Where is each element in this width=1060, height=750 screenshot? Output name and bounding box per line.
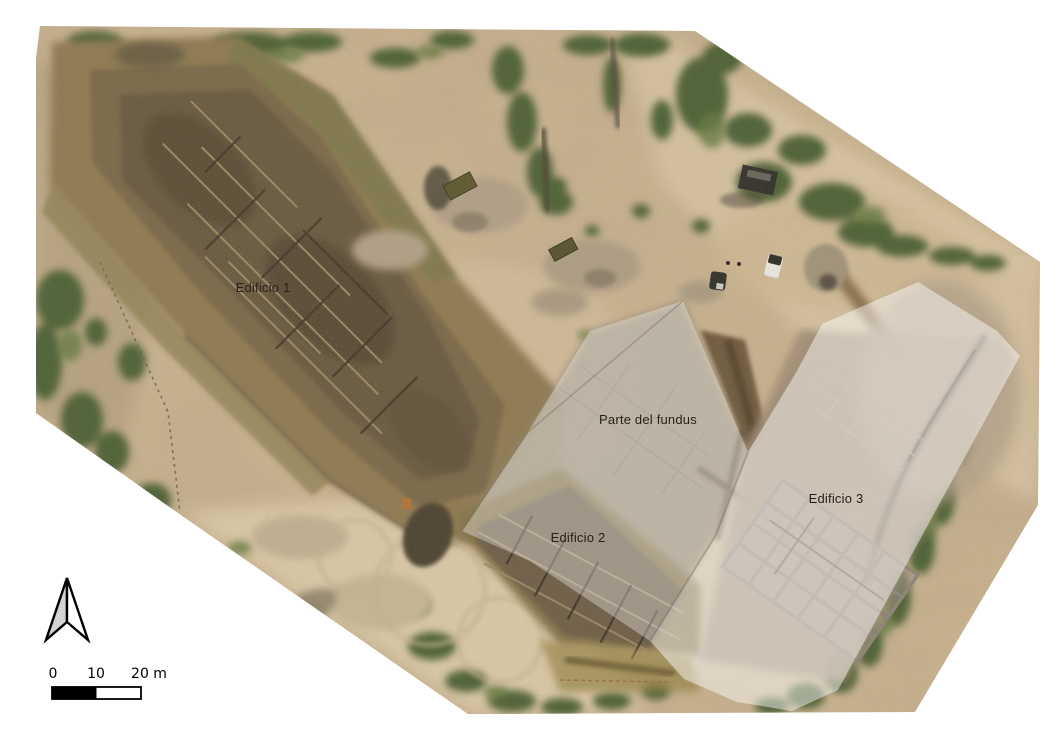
scale-bar-black-segment bbox=[52, 687, 97, 699]
label-edificio-2: Edificio 2 bbox=[551, 530, 606, 545]
label-edificio-1: Edificio 1 bbox=[236, 280, 291, 295]
north-arrow-icon bbox=[46, 578, 88, 640]
scale-tick-10: 10 bbox=[87, 666, 105, 682]
label-parte-del-fundus: Parte del fundus bbox=[599, 412, 697, 427]
scale-bar-white-segment bbox=[97, 687, 142, 699]
scale-tick-0: 0 bbox=[49, 666, 58, 682]
site-map-svg: Edificio 1 Parte del fundus Edificio 2 E… bbox=[0, 0, 1060, 750]
scale-tick-20m: 20 m bbox=[131, 666, 167, 682]
label-edificio-3: Edificio 3 bbox=[809, 491, 864, 506]
scale-bar: 0 10 20 m bbox=[49, 666, 167, 699]
orthophoto-figure: Edificio 1 Parte del fundus Edificio 2 E… bbox=[0, 0, 1060, 750]
